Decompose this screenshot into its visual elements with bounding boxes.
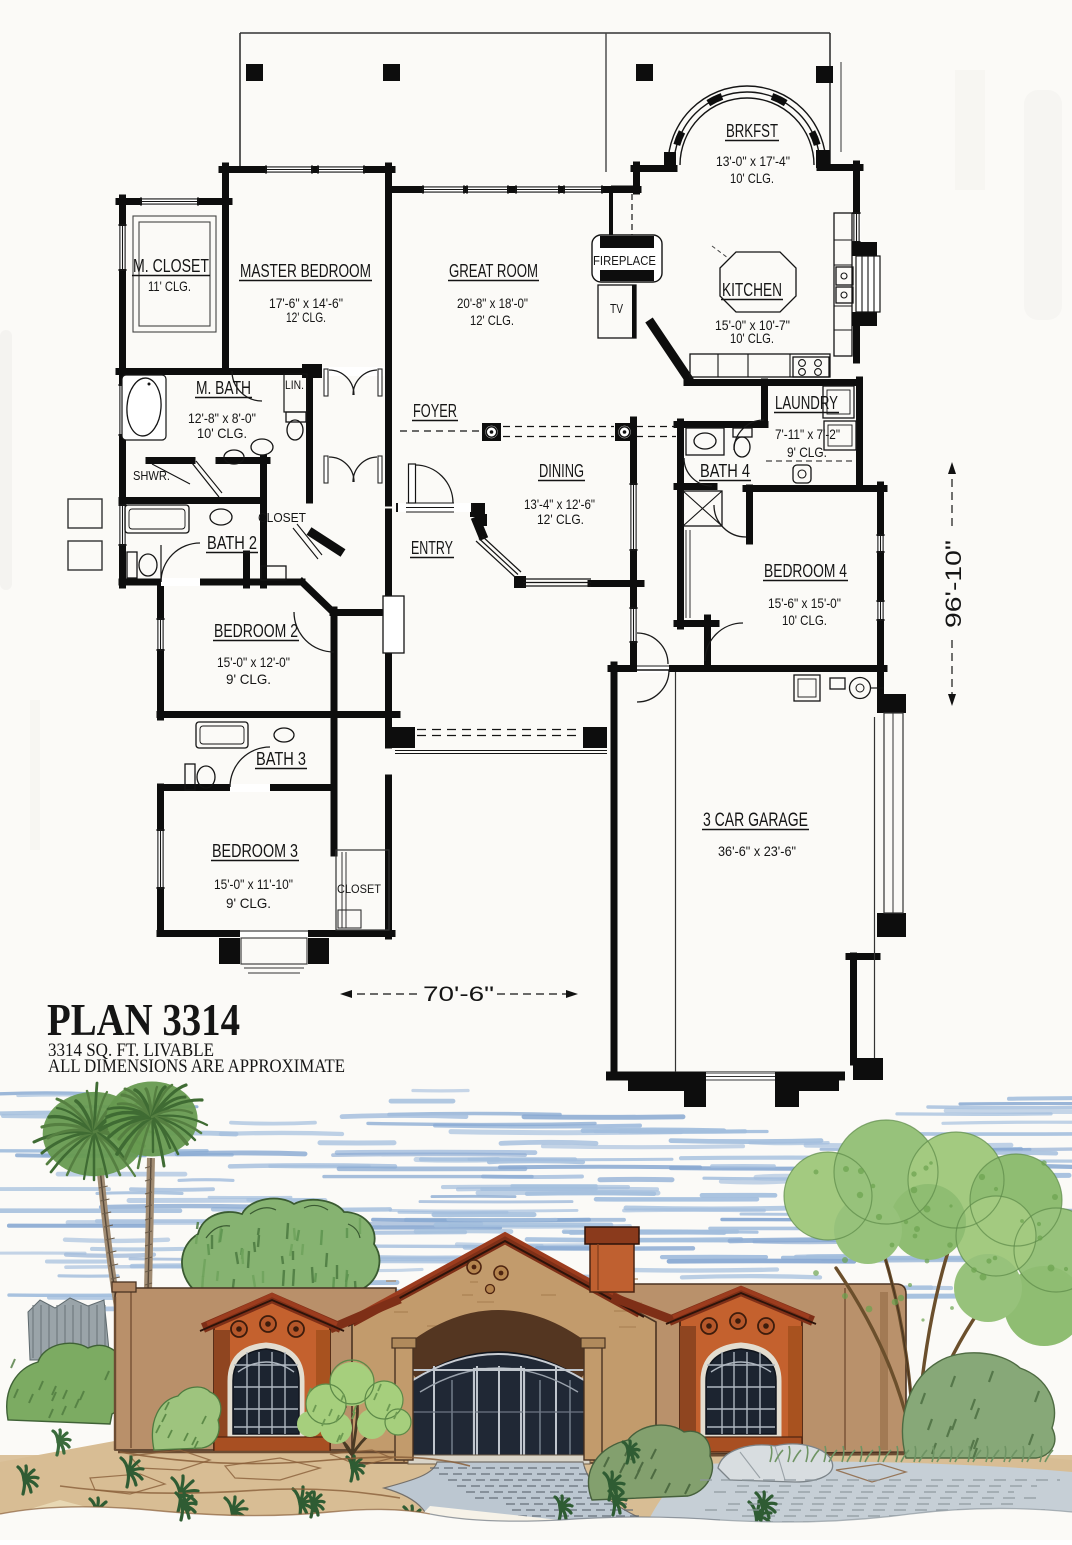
svg-text:20'-8" x 18'-0": 20'-8" x 18'-0" <box>457 295 528 311</box>
svg-text:GREAT ROOM: GREAT ROOM <box>449 261 538 281</box>
svg-text:12'-8" x 8'-0": 12'-8" x 8'-0" <box>188 410 256 426</box>
svg-text:10' CLG.: 10' CLG. <box>782 612 827 628</box>
svg-text:12' CLG.: 12' CLG. <box>537 511 584 527</box>
svg-text:TV: TV <box>610 301 623 316</box>
svg-text:BEDROOM 2: BEDROOM 2 <box>214 621 298 641</box>
svg-text:LIN.: LIN. <box>285 378 304 392</box>
svg-text:15'-0" x 12'-0": 15'-0" x 12'-0" <box>217 654 290 670</box>
svg-text:12' CLG.: 12' CLG. <box>470 312 514 328</box>
svg-text:13'-0" x 17'-4": 13'-0" x 17'-4" <box>716 153 790 169</box>
svg-text:BRKFST: BRKFST <box>726 121 778 141</box>
svg-text:36'-6" x 23'-6": 36'-6" x 23'-6" <box>718 843 796 859</box>
svg-text:PLAN 3314: PLAN 3314 <box>47 995 240 1045</box>
svg-text:11' CLG.: 11' CLG. <box>148 278 191 294</box>
svg-text:13'-4" x 12'-6": 13'-4" x 12'-6" <box>524 496 595 512</box>
svg-text:9' CLG.: 9' CLG. <box>226 895 271 911</box>
svg-text:10' CLG.: 10' CLG. <box>730 170 774 186</box>
svg-text:M. CLOSET: M. CLOSET <box>133 256 209 276</box>
svg-text:9' CLG.: 9' CLG. <box>787 444 827 460</box>
svg-text:FIREPLACE: FIREPLACE <box>593 253 656 268</box>
svg-text:KITCHEN: KITCHEN <box>722 280 782 300</box>
svg-text:CLOSET: CLOSET <box>337 882 382 896</box>
svg-text:BEDROOM 3: BEDROOM 3 <box>212 841 298 861</box>
svg-text:96'-10": 96'-10" <box>941 540 966 628</box>
svg-text:LAUNDRY: LAUNDRY <box>775 393 838 413</box>
svg-text:7'-11" x 7'-2": 7'-11" x 7'-2" <box>775 426 840 442</box>
svg-text:3 CAR GARAGE: 3 CAR GARAGE <box>703 810 808 831</box>
svg-text:ENTRY: ENTRY <box>411 538 453 558</box>
svg-text:BEDROOM 4: BEDROOM 4 <box>764 561 847 581</box>
svg-text:DINING: DINING <box>539 461 584 481</box>
svg-text:10' CLG.: 10' CLG. <box>197 425 247 441</box>
svg-text:BATH 4: BATH 4 <box>700 461 750 481</box>
svg-text:10' CLG.: 10' CLG. <box>730 330 774 346</box>
svg-text:15'-6" x 15'-0": 15'-6" x 15'-0" <box>768 595 841 611</box>
svg-text:FOYER: FOYER <box>413 401 457 421</box>
svg-text:70'-6": 70'-6" <box>423 983 494 1006</box>
svg-text:9' CLG.: 9' CLG. <box>226 671 271 687</box>
svg-text:12' CLG.: 12' CLG. <box>286 309 326 325</box>
svg-text:BATH 3: BATH 3 <box>256 749 306 769</box>
svg-text:ALL DIMENSIONS ARE APPROXIMATE: ALL DIMENSIONS ARE APPROXIMATE <box>48 1056 345 1077</box>
svg-text:CLOSET: CLOSET <box>258 510 306 525</box>
svg-text:MASTER BEDROOM: MASTER BEDROOM <box>240 261 371 281</box>
svg-text:SHWR.: SHWR. <box>133 468 170 483</box>
svg-text:15'-0" x 11'-10": 15'-0" x 11'-10" <box>214 876 293 892</box>
svg-text:M. BATH: M. BATH <box>196 378 251 398</box>
svg-text:BATH 2: BATH 2 <box>207 533 257 553</box>
